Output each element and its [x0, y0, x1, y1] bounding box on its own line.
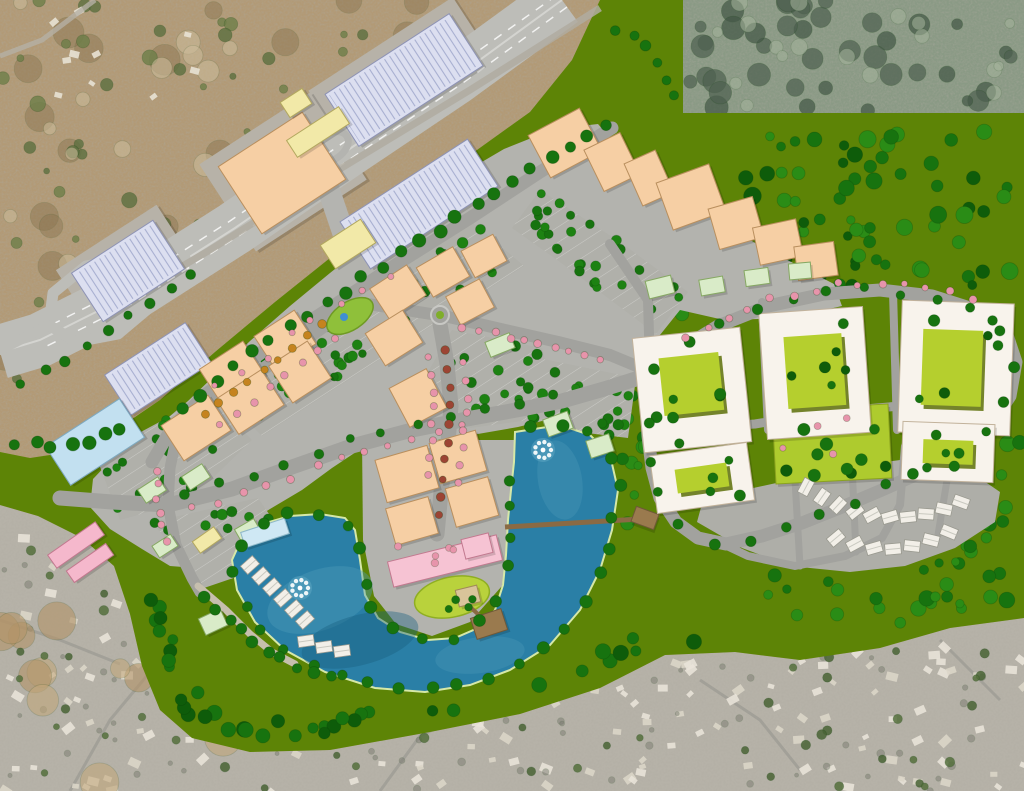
tree: [113, 423, 125, 435]
tree: [799, 217, 809, 227]
tree: [317, 338, 327, 348]
tree: [907, 468, 918, 479]
tree: [915, 395, 923, 403]
tree: [565, 142, 576, 153]
tree: [217, 509, 228, 520]
tree: [59, 356, 70, 367]
tree: [595, 644, 610, 659]
tree: [830, 608, 843, 621]
tree: [216, 421, 222, 427]
tree: [449, 635, 459, 645]
tree: [337, 670, 347, 680]
tree: [787, 371, 796, 380]
tree: [841, 365, 850, 374]
tree: [41, 652, 48, 659]
commercial-building: [788, 262, 814, 283]
tree: [158, 521, 165, 528]
tree: [790, 196, 800, 206]
tree: [998, 397, 1009, 408]
tree: [747, 63, 770, 86]
tree: [812, 449, 824, 461]
tree: [503, 717, 509, 723]
tree: [258, 518, 269, 529]
tree: [580, 595, 593, 608]
tree: [995, 326, 1005, 336]
tree: [648, 364, 659, 375]
tree: [819, 81, 833, 95]
tree: [942, 449, 950, 457]
tree: [458, 324, 466, 332]
tree: [776, 167, 787, 178]
tree: [829, 450, 836, 457]
aerial-speck: [885, 755, 897, 764]
tree: [387, 622, 399, 634]
tree: [976, 124, 991, 139]
tree: [821, 286, 831, 296]
tree: [973, 675, 980, 682]
aerial-speck: [378, 761, 385, 766]
tree: [333, 752, 340, 759]
tree: [613, 645, 628, 660]
tree: [448, 210, 461, 223]
tree: [931, 430, 941, 440]
tree: [179, 489, 189, 499]
tree: [997, 516, 1009, 528]
tree: [524, 420, 536, 432]
commercial-building: [744, 267, 772, 289]
tree: [616, 453, 628, 465]
tree: [65, 147, 78, 160]
aerial-speck: [72, 783, 79, 789]
tree: [921, 783, 928, 790]
tree: [429, 437, 436, 444]
tree: [831, 583, 844, 596]
tree: [814, 423, 821, 430]
fountain-spray: [304, 581, 308, 585]
tree: [828, 381, 836, 389]
tree: [747, 780, 754, 787]
tree: [347, 351, 357, 361]
tree: [531, 220, 541, 230]
tree: [930, 206, 947, 223]
tree: [177, 403, 189, 415]
fountain-spray: [537, 455, 541, 459]
aerial-speck: [818, 662, 828, 669]
tree: [198, 710, 212, 724]
tree: [725, 456, 733, 464]
tree: [741, 746, 749, 754]
tree: [839, 180, 855, 196]
tree: [113, 738, 118, 743]
tree: [933, 295, 943, 305]
tree: [446, 401, 454, 409]
tree: [946, 287, 954, 295]
tree: [205, 2, 223, 20]
tree: [631, 646, 641, 656]
aerial-speck: [928, 651, 940, 660]
tree: [60, 654, 64, 658]
tree: [175, 694, 187, 706]
tree: [714, 319, 724, 329]
tree: [100, 590, 108, 598]
fountain-spray: [547, 443, 551, 447]
roundabout-center-green: [436, 311, 444, 319]
tree: [378, 262, 389, 273]
tree: [860, 283, 869, 292]
tree: [605, 452, 617, 464]
tree: [8, 773, 12, 777]
tree: [41, 365, 51, 375]
tree: [744, 306, 751, 313]
tree: [427, 371, 435, 379]
tree: [967, 701, 976, 710]
tree: [730, 77, 742, 89]
tree: [153, 625, 166, 638]
tree: [61, 39, 70, 48]
tree: [246, 344, 259, 357]
tree: [940, 577, 954, 591]
tree: [543, 207, 552, 216]
tree: [847, 216, 856, 225]
tree: [318, 727, 330, 739]
tree: [726, 315, 733, 322]
aerial-speck: [658, 685, 668, 692]
tree: [9, 440, 19, 450]
tree: [488, 188, 500, 200]
tree: [978, 205, 990, 217]
tree: [634, 461, 642, 469]
tree: [691, 35, 714, 58]
fountain-spray: [533, 451, 537, 455]
tree: [432, 553, 439, 560]
tree: [835, 279, 842, 286]
tree: [783, 585, 792, 594]
tree: [473, 614, 485, 626]
tree: [256, 729, 270, 743]
tree: [154, 467, 162, 475]
tree: [576, 665, 588, 677]
tree: [267, 383, 274, 390]
tree: [435, 428, 442, 435]
tree: [39, 214, 63, 238]
tree: [425, 454, 433, 462]
tree: [483, 673, 495, 685]
tree: [912, 16, 926, 30]
tree: [22, 562, 28, 568]
tree: [444, 439, 452, 447]
tree: [285, 320, 297, 332]
tree: [968, 280, 977, 289]
tree: [603, 543, 615, 555]
tree: [617, 280, 626, 289]
tree: [53, 724, 59, 730]
tree: [239, 370, 245, 376]
tree: [843, 742, 849, 748]
tree: [546, 151, 559, 164]
tree: [646, 457, 656, 467]
tree: [100, 78, 113, 91]
site-plan-svg: [0, 0, 1024, 791]
tree: [764, 590, 773, 599]
tree: [627, 632, 639, 644]
tree: [83, 342, 92, 351]
tree: [279, 85, 288, 94]
tree: [318, 320, 327, 329]
tree: [11, 237, 22, 248]
tree: [635, 265, 644, 274]
tree: [308, 723, 319, 734]
site-plan-map: [0, 0, 1024, 791]
tree: [591, 277, 600, 286]
tree: [201, 410, 209, 418]
tree: [823, 577, 833, 587]
commercial-building: [788, 262, 811, 280]
tree: [395, 245, 407, 257]
tree: [738, 170, 753, 185]
townhome-row: [903, 540, 920, 553]
tree: [373, 755, 378, 760]
tree: [122, 192, 138, 208]
tree: [988, 316, 998, 326]
tree: [299, 359, 306, 366]
tree: [288, 344, 296, 352]
tree: [896, 750, 903, 757]
tree: [741, 99, 754, 112]
tree: [841, 463, 853, 475]
tree: [993, 340, 1003, 350]
tree: [214, 399, 223, 408]
tree: [274, 651, 285, 662]
tree: [243, 378, 251, 386]
tree: [608, 777, 615, 784]
tree: [455, 479, 462, 486]
tree: [447, 704, 460, 717]
tree: [289, 730, 301, 742]
tree: [667, 412, 678, 423]
tree: [414, 420, 423, 429]
tree: [292, 664, 302, 674]
tree: [673, 519, 683, 529]
tree: [430, 389, 438, 397]
tree: [38, 602, 76, 640]
tree: [168, 761, 173, 766]
tree: [30, 96, 46, 112]
tree: [808, 469, 820, 481]
aerial-speck: [643, 719, 652, 725]
tree: [458, 758, 466, 766]
tree: [682, 334, 690, 342]
tree: [362, 676, 373, 687]
tree: [0, 612, 27, 644]
tree: [811, 7, 832, 28]
tree: [76, 35, 89, 48]
tree: [850, 499, 860, 509]
tree: [863, 236, 875, 248]
tree: [188, 504, 195, 511]
fountain-spray: [290, 583, 294, 587]
tree: [914, 263, 929, 278]
tree: [935, 559, 944, 568]
aerial-speck: [990, 772, 997, 777]
tree: [490, 596, 502, 608]
tree: [441, 346, 450, 355]
tree: [939, 388, 950, 399]
aerial-speck: [1005, 665, 1017, 674]
tree: [226, 615, 237, 626]
tree: [879, 666, 885, 672]
fountain-spray: [533, 445, 537, 449]
townhome-row: [885, 543, 902, 555]
tree: [813, 288, 820, 295]
tree: [162, 653, 176, 667]
tree: [859, 131, 876, 148]
tree: [880, 260, 890, 270]
tree: [965, 303, 974, 312]
tree: [272, 29, 299, 56]
tree: [31, 436, 43, 448]
tree: [795, 773, 799, 777]
tree: [154, 25, 166, 37]
fountain-spray: [549, 448, 553, 452]
tree: [534, 340, 542, 348]
tree: [352, 762, 359, 769]
tree: [967, 735, 974, 742]
tree: [644, 418, 654, 428]
tree: [523, 356, 532, 365]
tree: [871, 255, 881, 265]
tree: [473, 198, 485, 210]
tree: [866, 173, 882, 189]
tree: [922, 285, 928, 291]
tree: [630, 31, 639, 40]
tree: [553, 245, 562, 254]
tree: [274, 357, 281, 364]
tree: [896, 219, 912, 235]
tree: [896, 291, 905, 300]
tree: [215, 500, 222, 507]
tree: [956, 206, 973, 223]
tree: [862, 67, 878, 83]
townhome-row: [918, 508, 935, 520]
tree: [476, 224, 486, 234]
tree: [250, 472, 259, 481]
tree: [559, 624, 570, 635]
tree: [552, 344, 559, 351]
tree: [427, 682, 439, 694]
tree: [653, 58, 662, 67]
tree: [364, 601, 377, 614]
tree: [880, 63, 902, 85]
tree: [951, 558, 959, 566]
tree: [261, 366, 268, 373]
tree: [581, 130, 593, 142]
tree: [843, 415, 850, 422]
aerial-speck: [18, 534, 30, 543]
tree: [835, 782, 844, 791]
aerial-speck: [30, 765, 37, 770]
tree: [223, 524, 232, 533]
tree: [240, 488, 248, 496]
tree: [264, 647, 275, 658]
tree: [537, 642, 550, 655]
tree: [601, 120, 612, 131]
tree: [242, 602, 252, 612]
tree: [876, 151, 889, 164]
tree: [412, 234, 426, 248]
tree: [145, 298, 156, 309]
tree: [220, 762, 230, 772]
tree: [997, 190, 1011, 204]
tree: [227, 566, 239, 578]
tree: [823, 763, 830, 770]
tree: [434, 225, 447, 238]
tree: [895, 168, 906, 179]
tree: [358, 350, 366, 358]
residential-block: [759, 306, 874, 442]
tree: [854, 282, 860, 288]
fountain-center: [541, 448, 546, 453]
tree: [792, 167, 805, 180]
tree: [675, 712, 679, 716]
fountain-spray: [304, 591, 308, 595]
tree: [517, 767, 524, 774]
tree: [191, 686, 204, 699]
tree: [271, 714, 284, 727]
tree: [503, 560, 514, 571]
tree: [942, 591, 953, 602]
tree: [339, 454, 345, 460]
tree: [777, 16, 797, 36]
tree: [962, 95, 973, 106]
tree: [456, 461, 464, 469]
tree: [799, 99, 815, 115]
tree: [786, 79, 804, 97]
tree: [931, 180, 943, 192]
tree: [708, 473, 718, 483]
tree: [183, 45, 203, 65]
tree: [323, 297, 333, 307]
commercial-building: [744, 267, 770, 286]
tree: [314, 347, 322, 355]
commercial-building: [699, 276, 725, 296]
tree: [780, 465, 792, 477]
aerial-speck: [667, 742, 676, 748]
tree: [155, 480, 162, 487]
tree: [764, 698, 774, 708]
tree: [25, 581, 33, 589]
tree: [891, 9, 907, 25]
tree: [154, 611, 167, 624]
tree: [430, 403, 437, 410]
fountain-spray: [299, 594, 303, 598]
tree: [1001, 263, 1018, 280]
tree: [919, 565, 928, 574]
tree: [760, 166, 775, 181]
tree: [114, 141, 131, 158]
tree: [869, 655, 874, 660]
tree: [408, 436, 415, 443]
tree: [357, 29, 368, 40]
tree: [603, 742, 610, 749]
townhome-row: [315, 640, 332, 653]
aerial-speck: [743, 762, 753, 770]
tree: [425, 471, 432, 478]
tree: [999, 500, 1013, 514]
tree: [151, 57, 172, 78]
tree: [597, 419, 607, 429]
tree: [226, 506, 237, 517]
fountain-spray: [294, 579, 298, 583]
